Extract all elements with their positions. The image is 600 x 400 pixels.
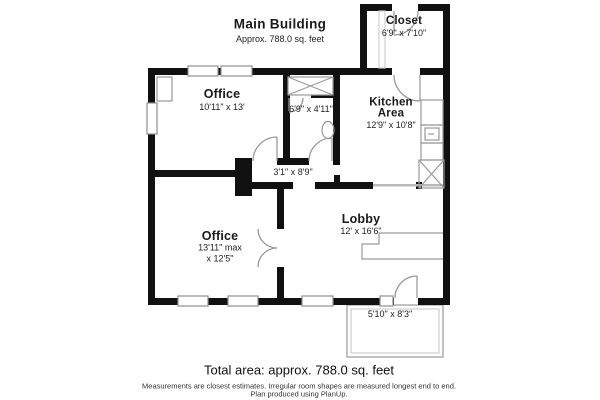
lobby-desk-icon bbox=[362, 233, 443, 259]
wall-office-bottom-a bbox=[235, 158, 252, 165]
window-top-1 bbox=[188, 66, 218, 76]
wall-right bbox=[443, 4, 450, 305]
wall-office-bottom-b bbox=[277, 158, 290, 165]
office-lobby-french-doors bbox=[258, 229, 277, 267]
office-bottom-dims-line2: x 12'5" bbox=[207, 253, 234, 263]
office-hall-door bbox=[253, 137, 277, 161]
hallway-dims: 3'1" x 8'9" bbox=[273, 167, 312, 177]
floorplan-page: Main Building Approx. 788.0 sq. feet Clo… bbox=[0, 0, 600, 400]
floorplan-canvas bbox=[0, 0, 600, 400]
closet-label: Closet bbox=[386, 15, 422, 27]
wall-office-lobby-a bbox=[277, 182, 284, 229]
window-left-1 bbox=[147, 103, 157, 134]
closet-dims: 6'9" x 7'10" bbox=[382, 28, 426, 38]
office-top-dims: 10'11" x 13' bbox=[199, 102, 245, 112]
sink-icon bbox=[322, 122, 334, 139]
window-top-2 bbox=[221, 66, 252, 76]
window-bottom-2 bbox=[228, 296, 258, 306]
office-bottom-label: Office bbox=[202, 229, 239, 243]
total-area-text: Total area: approx. 788.0 sq. feet bbox=[204, 363, 394, 378]
page-title: Main Building bbox=[234, 17, 326, 32]
office-bottom-dims: 13'11" max x 12'5" bbox=[198, 243, 242, 264]
kitchen-dims: 12'9" x 10'8" bbox=[366, 120, 415, 130]
kitchen-counter-icons bbox=[419, 100, 444, 188]
wall-bath-right bbox=[333, 75, 340, 165]
wall-office-lobby-b bbox=[277, 267, 284, 298]
office-bottom-dims-line1: 13'11" max bbox=[198, 243, 242, 253]
appliance-icon bbox=[419, 160, 444, 188]
wall-top-b bbox=[420, 68, 450, 75]
window-bottom-3 bbox=[302, 296, 333, 306]
walls bbox=[148, 4, 450, 305]
bathroom-door bbox=[309, 138, 332, 161]
fixtures bbox=[157, 11, 444, 259]
kitchen-label-line2: Area bbox=[378, 107, 404, 119]
wall-top-a bbox=[148, 68, 392, 75]
storage-shelf-icon bbox=[288, 77, 333, 95]
closet-column bbox=[379, 11, 385, 68]
office-top-label: Office bbox=[204, 87, 241, 101]
disclaimer-line2: Plan produced using PlanUp. bbox=[250, 390, 347, 399]
bathroom-dims: 6'9" x 4'11" bbox=[289, 104, 333, 114]
kitchen-label: Kitchen Area bbox=[369, 98, 413, 119]
wall-hall-lobby-a bbox=[250, 182, 293, 189]
porch-dims: 5'10" x 8'3" bbox=[368, 309, 412, 319]
wall-closet-left bbox=[360, 4, 367, 75]
opening-kitchen-lobby bbox=[373, 184, 443, 187]
window-bottom-1 bbox=[178, 296, 208, 306]
window-bottom-4 bbox=[380, 296, 393, 306]
radiator-icon bbox=[157, 77, 172, 101]
lobby-exterior-door bbox=[395, 276, 417, 298]
wall-stub bbox=[334, 175, 340, 183]
lobby-label: Lobby bbox=[342, 212, 381, 226]
wall-hall-lobby-b bbox=[315, 182, 373, 189]
wall-bottom-b bbox=[418, 298, 450, 305]
lobby-dims: 12' x 16'6" bbox=[340, 226, 381, 236]
wall-office-divider bbox=[148, 170, 250, 177]
page-subtitle: Approx. 788.0 sq. feet bbox=[236, 34, 324, 44]
